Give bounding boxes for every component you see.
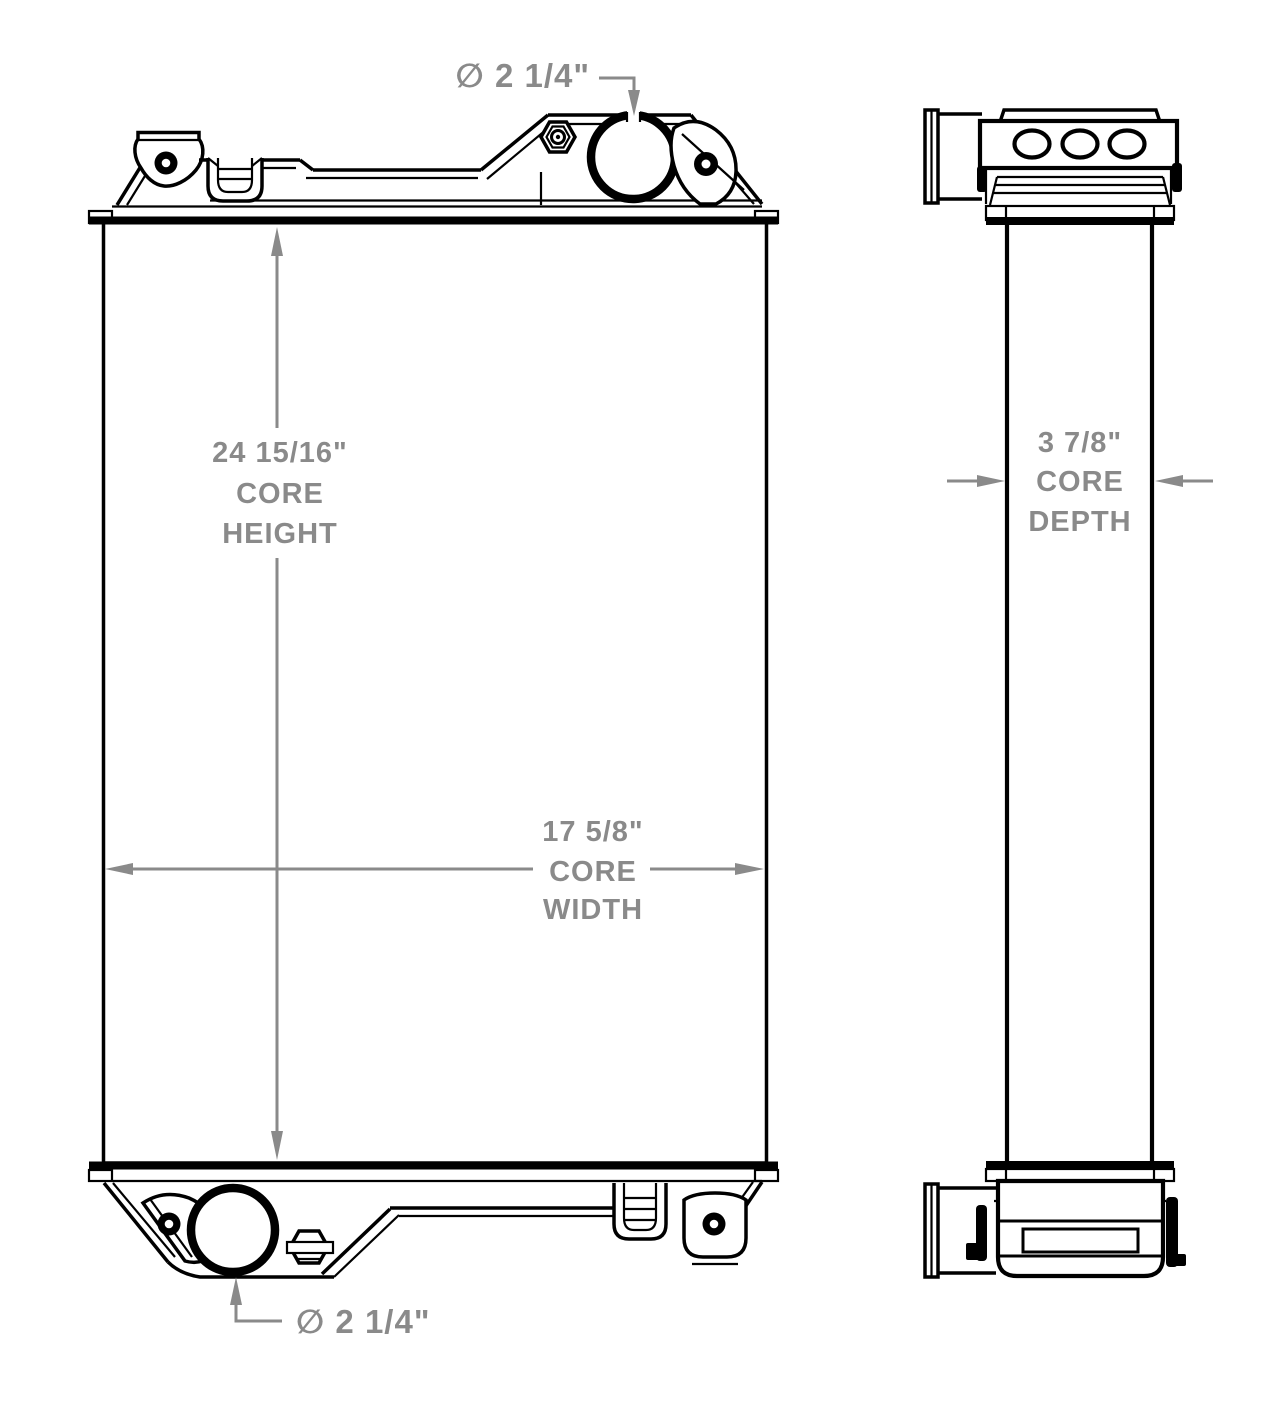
- front-view: [89, 108, 778, 1277]
- mounting-bracket-bottom-right: [684, 1193, 746, 1264]
- core-depth-value: 3 7/8": [1038, 427, 1122, 459]
- side-core-column: [1007, 224, 1152, 1162]
- bottom-tank: [104, 1182, 762, 1277]
- top-port-circle: [591, 115, 675, 199]
- side-top-flange: [986, 206, 1174, 225]
- bottom-port-circle: [191, 1188, 275, 1272]
- arrow-down-icon: [271, 1131, 283, 1160]
- side-bottom-flange: [986, 1161, 1174, 1181]
- overflow-channel-bottom: [614, 1183, 666, 1239]
- side-mounting-plate: [980, 121, 1177, 168]
- dim-core-width: 17 5/8" CORE WIDTH: [105, 816, 764, 926]
- clamp-bottom-right-foot: [1174, 1254, 1186, 1266]
- radiator-technical-drawing: ∅ 2 1/4" 24 15/16" CORE HEIGHT 17 5/8" C…: [0, 0, 1278, 1403]
- dim-bottom-port: ∅ 2 1/4": [230, 1277, 430, 1340]
- core-height-label-1: CORE: [236, 478, 324, 510]
- overflow-channel-top: [199, 158, 262, 201]
- bottom-flange: [89, 1162, 778, 1182]
- core-front: [104, 222, 767, 1163]
- mounting-bracket-top-left: [135, 133, 203, 187]
- top-port-label: ∅ 2 1/4": [456, 57, 590, 94]
- core-width-value: 17 5/8": [542, 816, 643, 848]
- core-depth-label-1: CORE: [1036, 466, 1124, 498]
- side-top-tank: [925, 110, 1182, 225]
- inlet-pipe: [925, 110, 982, 203]
- drain-plug: [287, 1231, 333, 1263]
- clamp-bottom-left-foot: [966, 1243, 983, 1260]
- clamp-top-right: [1172, 163, 1182, 192]
- arrow-up-icon: [271, 227, 283, 256]
- top-tank: [117, 108, 762, 205]
- side-view: [925, 110, 1186, 1277]
- arrow-right-icon: [977, 475, 1005, 487]
- top-flange: [89, 201, 778, 225]
- dim-core-height: 24 15/16" CORE HEIGHT: [212, 227, 348, 1160]
- core-height-value: 24 15/16": [212, 437, 348, 469]
- dim-core-depth: 3 7/8" CORE DEPTH: [947, 427, 1213, 538]
- arrow-up-icon: [230, 1277, 242, 1305]
- arrow-left-icon: [1155, 475, 1183, 487]
- side-bottom-tank: [925, 1161, 1186, 1277]
- core-depth-label-2: DEPTH: [1028, 506, 1131, 538]
- core-height-label-2: HEIGHT: [222, 518, 338, 550]
- core-width-label-1: CORE: [549, 856, 637, 888]
- hex-fitting: [541, 122, 575, 152]
- core-width-label-2: WIDTH: [543, 894, 643, 926]
- arrow-left-icon: [105, 863, 133, 875]
- dim-top-port: ∅ 2 1/4": [456, 57, 640, 116]
- radiator-drawing-page: ∅ 2 1/4" 24 15/16" CORE HEIGHT 17 5/8" C…: [0, 0, 1278, 1403]
- arrow-right-icon: [735, 863, 764, 875]
- bottom-port-label: ∅ 2 1/4": [296, 1303, 430, 1340]
- clamp-top-left: [977, 166, 987, 192]
- side-bottom-window: [1023, 1229, 1138, 1252]
- mounting-bracket-top-right: [671, 121, 744, 204]
